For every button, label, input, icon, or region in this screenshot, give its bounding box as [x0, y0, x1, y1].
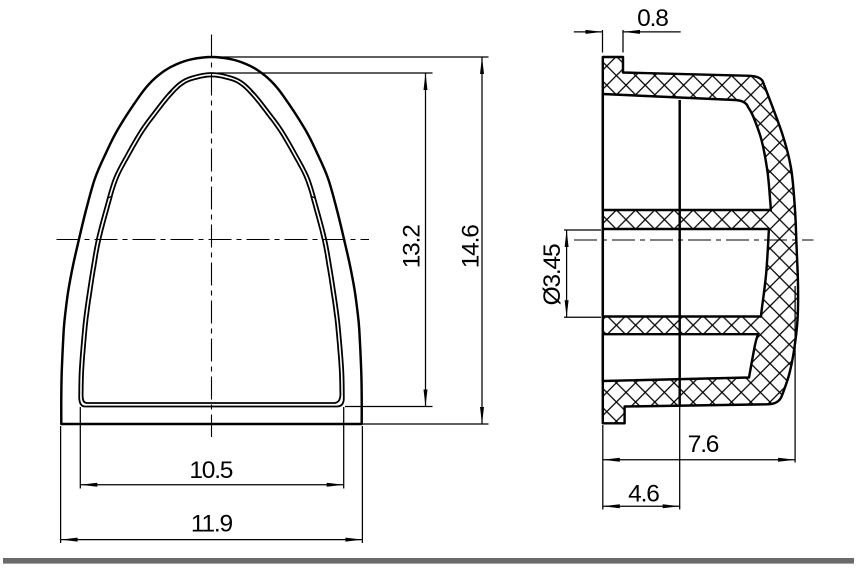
svg-text:11.9: 11.9 — [191, 510, 233, 537]
svg-text:10.5: 10.5 — [189, 457, 232, 484]
svg-text:14.6: 14.6 — [458, 225, 485, 268]
svg-text:13.2: 13.2 — [399, 225, 426, 268]
svg-text:4.6: 4.6 — [628, 480, 659, 507]
svg-text:Ø3.45: Ø3.45 — [539, 244, 566, 305]
svg-text:0.8: 0.8 — [637, 5, 668, 32]
svg-text:7.6: 7.6 — [688, 431, 719, 458]
